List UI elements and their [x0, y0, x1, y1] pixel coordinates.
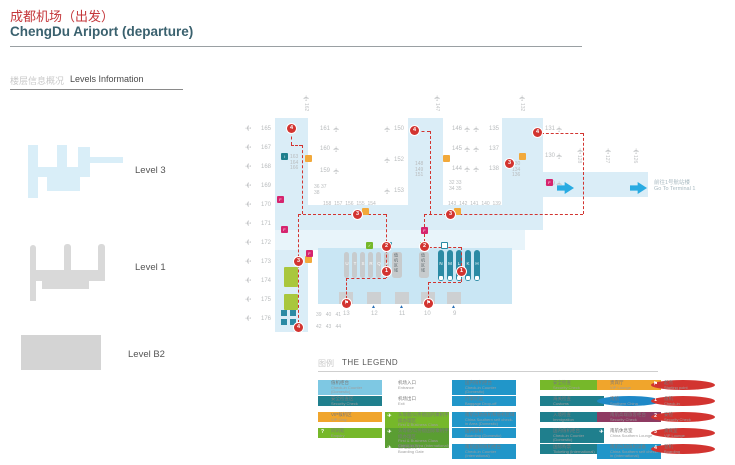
section-label-zh: 楼层信息概况: [10, 74, 64, 87]
route-marker: 4: [294, 323, 303, 332]
legend-icon: [540, 396, 549, 405]
legend-icon: [597, 380, 606, 389]
legend-divider: [318, 371, 658, 372]
legend-icon: [318, 396, 327, 405]
map-shape: [281, 319, 287, 325]
legend-label-en: Security Check: [553, 386, 580, 391]
legend-item: 南航自助值机和值机区域 China Southern self check-in…: [452, 412, 516, 427]
legend-label: 贵宾室 VIP Lounge: [664, 428, 685, 438]
plane-icon: [556, 125, 564, 133]
legend-label-en: Starting point: [664, 386, 688, 391]
poi-icon: F: [546, 179, 553, 186]
map-label: 147: [434, 103, 439, 111]
plane-icon: [244, 239, 252, 247]
legend-label-en: Boarding: [664, 450, 680, 455]
route-segment: [291, 145, 302, 146]
route-marker: 1: [382, 267, 391, 276]
level3-shape-part: [47, 177, 80, 191]
level1-shape-part: [42, 281, 89, 289]
map-label: ▲: [399, 304, 404, 310]
legend-label-en: Boarding (Domestic): [465, 434, 501, 439]
legend-icon: [540, 380, 549, 389]
poi-icon: F: [306, 250, 313, 257]
map-label: 173: [261, 259, 271, 266]
map-label: 36 37 38: [314, 185, 327, 196]
route-segment: [430, 131, 431, 214]
map-label: 42 43 44: [316, 325, 341, 331]
map-label: 160: [320, 146, 330, 153]
route-marker: ⚑: [424, 299, 433, 308]
map-shape: [284, 267, 298, 287]
map-label: 127: [604, 155, 609, 163]
legend-icon: 3: [651, 428, 660, 437]
plane-icon: [333, 145, 341, 153]
map-label: 11: [399, 311, 405, 318]
map-shape: [439, 276, 443, 280]
legend-item: 行李托运 Baggage Drop-off: [452, 396, 516, 406]
legend-label-en: China Southern self check-in Area (Domes…: [465, 418, 516, 427]
poi-icon: [362, 208, 369, 215]
map-label: 137: [489, 146, 499, 153]
map-label: 171: [261, 221, 271, 228]
legend-label-en: Immigration: [553, 418, 574, 423]
route-segment: [541, 133, 583, 134]
plane-icon: [464, 125, 472, 133]
legend-item: 入境检查 Immigration: [540, 412, 604, 422]
legend-item: ✈ 航班登机口 Boarding Gate: [385, 444, 449, 454]
map-label: 176: [261, 316, 271, 323]
route-segment: [428, 282, 461, 283]
level1-shape-part: [30, 281, 36, 301]
map-label: 168: [261, 164, 271, 171]
map-shape: [475, 276, 479, 280]
legend-item: 国际购票 Ticketing (International): [540, 444, 604, 454]
plane-icon: [633, 147, 641, 155]
poi-icon: F: [421, 227, 428, 234]
map-label: H: [474, 261, 480, 266]
legend-icon: ▲: [385, 380, 394, 389]
route-segment: [346, 278, 386, 279]
map-shape: [502, 172, 648, 197]
map-label: 158 157 156 155 154: [323, 202, 376, 208]
legend-label-en: VIP Lounge: [610, 386, 631, 391]
map-label: 169: [261, 183, 271, 190]
map-label: 167: [261, 145, 271, 152]
poi-icon: [441, 242, 448, 249]
route-segment: [461, 247, 462, 282]
legend-item: 安全检查 Security Check: [540, 380, 604, 390]
route-segment: [346, 278, 347, 299]
map-shape: [395, 292, 409, 304]
map-label: 150: [394, 126, 404, 133]
route-marker: 2: [382, 242, 391, 251]
legend-item: 国内值机柜台 Check-in Counter (Domestic): [540, 428, 604, 443]
legend-label: 问讯处 Enquiry: [331, 428, 345, 438]
plane-icon: [333, 125, 341, 133]
legend-label-en: China Southern Lounge: [610, 434, 652, 439]
map-label: 132: [519, 103, 524, 111]
legend-label: 航班登机口 Boarding Gate: [398, 444, 424, 454]
levelb2-thumbnail[interactable]: [21, 335, 101, 370]
section-label-en: Levels Information: [70, 74, 144, 84]
header-divider: [10, 46, 582, 47]
section-divider: [10, 89, 183, 90]
legend-icon: 4: [651, 444, 660, 453]
level3-shape-part: [57, 145, 67, 167]
map-label: 128: [576, 155, 581, 163]
legend-icon: ⚑: [651, 380, 660, 389]
legend-label-en: VIP Only: [331, 418, 352, 423]
plane-icon: [434, 94, 442, 102]
plane-icon: [244, 296, 252, 304]
legend-icon: [540, 444, 549, 453]
level1-shape-part: [30, 245, 36, 273]
level3-label[interactable]: Level 3: [135, 165, 166, 176]
plane-icon: [473, 125, 481, 133]
legend-label-en: Enquiry: [331, 434, 345, 439]
poi-icon: ↕: [281, 153, 288, 160]
legend-label-en: VIP Lounge: [664, 434, 685, 439]
plane-icon: [384, 125, 392, 133]
map-label: 值机区域: [394, 253, 398, 273]
map-label: 9: [453, 311, 456, 318]
legend-label-en: Entrance: [398, 386, 416, 391]
route-marker: 3: [505, 159, 514, 168]
legend-icon: [540, 428, 549, 437]
map-label: 174: [261, 278, 271, 285]
legend-icon: ✈: [385, 444, 394, 453]
page-title-en: ChengDu Ariport (departure): [10, 24, 193, 39]
legend-label: 南航国际值机柜台 Check-in Counter (International…: [465, 444, 516, 459]
map-label: K: [465, 261, 471, 266]
map-label: 172: [261, 240, 271, 247]
map-label: R: [368, 261, 374, 266]
plane-icon: [333, 167, 341, 175]
map-label: N: [438, 261, 444, 266]
legend-label: 海关检查 Customs: [553, 396, 571, 406]
map-shape: [447, 292, 461, 304]
map-label: 170: [261, 202, 271, 209]
poi-icon: [305, 256, 312, 263]
plane-icon: [244, 163, 252, 171]
route-marker: 3: [294, 257, 303, 266]
route-segment: [302, 145, 303, 214]
poi-icon: ✓: [366, 242, 373, 249]
legend-label: 南航自助值机和值机区域 China Southern self check-in…: [465, 412, 516, 427]
terminal-link-zh[interactable]: 前往1号航站楼: [654, 178, 690, 186]
legend-label: 安检 Security Check: [664, 412, 691, 422]
map-label: 138: [489, 166, 499, 173]
legend-label: VIP候机区 VIP Only: [331, 412, 352, 422]
legend-item: 3 贵宾室 VIP Lounge: [651, 428, 715, 438]
legend-label-en: Security Check: [331, 402, 358, 407]
map-label: Q: [376, 261, 382, 266]
legend-icon: ✈: [385, 428, 394, 437]
map-label: 165: [261, 126, 271, 133]
map-label: 163 164 166: [290, 155, 298, 172]
map-label: ▲: [371, 304, 376, 310]
legend-icon: 2: [651, 412, 660, 421]
map-label: ▲: [451, 304, 456, 310]
legend-label: 南航 Southern China: [610, 396, 638, 406]
plane-icon: [464, 145, 472, 153]
poi-icon: F: [277, 196, 284, 203]
plane-icon: [556, 152, 564, 160]
legend-label-en: Southern China: [610, 402, 638, 407]
legend-icon: [452, 396, 461, 405]
map-label: 152: [394, 157, 404, 164]
legend-label: 贵宾厅 VIP Lounge: [610, 380, 631, 390]
legend-label: 登机 Boarding: [664, 444, 680, 454]
levelb2-label[interactable]: Level B2: [128, 349, 165, 360]
map-shape: [466, 276, 470, 280]
level1-shape-part: [98, 244, 105, 273]
legend-item: 国内登机 Boarding (Domestic): [452, 428, 516, 438]
map-label: 值机区域: [421, 253, 425, 273]
legend-icon: [597, 412, 606, 421]
legend-label: 值机柜台 Check-in Counter (Domestic): [331, 380, 382, 395]
poi-icon: [443, 155, 450, 162]
legend-icon: [452, 444, 461, 453]
poi-icon: [454, 208, 461, 215]
legend-label-en: Ticketing (International): [553, 450, 595, 455]
legend-item: 国内值机柜台 Check-in Counter (Domestic): [452, 380, 516, 395]
legend-label: 行李托运 Baggage Drop-off: [465, 396, 497, 406]
map-label: 148 149 151: [415, 162, 423, 179]
plane-icon: [519, 94, 527, 102]
map-label: 146: [452, 126, 462, 133]
map-label: 153: [394, 188, 404, 195]
legend-icon: [318, 380, 327, 389]
legend-title-zh: 图例: [318, 358, 334, 369]
route-segment: [583, 133, 584, 214]
level1-label[interactable]: Level 1: [135, 262, 166, 273]
map-label: 175: [261, 297, 271, 304]
map-shape: [448, 276, 452, 280]
legend-icon: ✈: [385, 412, 394, 421]
map-label: 131: [545, 126, 555, 133]
route-marker: 2: [420, 242, 429, 251]
level3-shape-part: [37, 167, 90, 177]
plane-icon: [244, 277, 252, 285]
legend-label-en: Check-in Counter (Domestic): [331, 386, 382, 395]
legend-label: 机场入口 Entrance: [398, 380, 416, 390]
map-shape: [290, 310, 296, 316]
map-label: M: [447, 261, 453, 266]
map-label: 159: [320, 168, 330, 175]
route-segment: [291, 131, 292, 145]
legend-label-en: Boarding Gate: [398, 450, 424, 455]
plane-icon: [473, 145, 481, 153]
map-label: S: [360, 261, 366, 266]
map-label: 126: [632, 155, 637, 163]
legend-item: 海关检查 Customs: [540, 396, 604, 406]
legend-label-en: Check-in Counter (Domestic): [465, 386, 516, 395]
map-label: U: [344, 261, 350, 266]
plane-icon: [244, 258, 252, 266]
legend-item: ⚑ 起点 Starting point: [651, 380, 715, 390]
legend-item: ▲ 机场入口 Entrance: [385, 380, 449, 390]
page-title-zh: 成都机场（出发）: [10, 6, 114, 25]
plane-icon: [244, 144, 252, 152]
map-label: 32 33 34 35: [449, 181, 462, 192]
legend-label: 国内值机柜台 Check-in Counter (Domestic): [465, 380, 516, 395]
route-marker: 4: [410, 126, 419, 135]
legend-label: 国内登机 Boarding (Domestic): [465, 428, 501, 438]
legend-icon: [318, 412, 327, 421]
level1-shape-part: [30, 270, 105, 281]
legend-label-en: Exit: [398, 402, 416, 407]
legend-label-en: Customs: [553, 402, 571, 407]
legend-label: 安全检查区 Security Check: [331, 396, 358, 406]
legend-icon: ?: [318, 428, 327, 437]
plane-icon: [473, 165, 481, 173]
legend-label: 国际购票 Ticketing (International): [553, 444, 595, 454]
legend-label: 南航休息室 China Southern Lounge: [610, 428, 652, 438]
map-label: 13: [343, 311, 350, 318]
legend-icon: [452, 412, 461, 421]
plane-icon: [244, 315, 252, 323]
map-shape: [367, 292, 381, 304]
plane-icon: [464, 165, 472, 173]
plane-icon: [244, 220, 252, 228]
legend-icon: [597, 396, 606, 405]
poi-icon: [305, 155, 312, 162]
legend-title-en: THE LEGEND: [342, 358, 398, 367]
plane-icon: [303, 94, 311, 102]
poi-icon: F: [281, 226, 288, 233]
map-shape: [284, 294, 298, 310]
legend-item: 南航国际值机柜台 Check-in Counter (International…: [452, 444, 516, 459]
legend-item: 2 安检 Security Check: [651, 412, 715, 422]
plane-icon: [384, 156, 392, 164]
poi-icon: [519, 153, 526, 160]
legend-item: ▲ 机场出口 Exit: [385, 396, 449, 406]
plane-icon: [605, 147, 613, 155]
plane-icon: [244, 201, 252, 209]
legend-item: 1 值机 Check-in: [651, 396, 715, 406]
map-label: 39 40 41: [316, 313, 341, 319]
plane-icon: [244, 182, 252, 190]
legend-item: 安全检查区 Security Check: [318, 396, 382, 406]
map-shape: [275, 230, 525, 250]
map-shape: [275, 205, 525, 230]
legend-label: 安全检查 Security Check: [553, 380, 580, 390]
legend-label-en: Check-in Counter (International): [465, 450, 516, 459]
route-marker: 4: [287, 124, 296, 133]
level1-shape-part: [64, 244, 71, 273]
legend-label: 南航高端旅客柜台 Security Check: [610, 412, 646, 422]
route-marker: 4: [533, 128, 542, 137]
legend-item: ? 问讯处 Enquiry: [318, 428, 382, 438]
legend-label: 机场出口 Exit: [398, 396, 416, 406]
map-shape: [281, 310, 287, 316]
legend-label-en: Security Check: [664, 418, 691, 423]
route-marker: ⚑: [342, 299, 351, 308]
legend-item: 值机柜台 Check-in Counter (Domestic): [318, 380, 382, 395]
legend-label-en: Check-in: [664, 402, 680, 407]
plane-icon: [244, 125, 252, 133]
route-segment: [428, 282, 429, 299]
map-label: P: [384, 261, 390, 266]
map-label: 144: [452, 166, 462, 173]
legend-icon: ✈: [597, 428, 606, 437]
map-label: 145: [452, 146, 462, 153]
legend-icon: [597, 444, 606, 453]
map-label: T: [352, 261, 358, 266]
route-marker: 1: [457, 267, 466, 276]
map-label: 162: [303, 103, 308, 111]
map-label: 130: [545, 153, 555, 160]
map-label: 12: [371, 311, 378, 318]
legend-label-en: Security Check: [610, 418, 646, 423]
level3-shape-part: [90, 157, 123, 163]
legend-icon: [540, 412, 549, 421]
map-label: 161: [320, 126, 330, 133]
terminal-link-en[interactable]: Go To Terminal 1: [654, 186, 695, 192]
route-marker: 3: [353, 210, 362, 219]
legend-item: 4 登机 Boarding: [651, 444, 715, 454]
legend-label: 起点 Starting point: [664, 380, 688, 390]
plane-icon: [384, 187, 392, 195]
legend-icon: ▲: [385, 396, 394, 405]
route-segment: [298, 214, 386, 215]
legend-label: 入境检查 Immigration: [553, 412, 574, 422]
map-label: 10: [424, 311, 431, 318]
legend-icon: [452, 428, 461, 437]
route-segment: [298, 214, 299, 328]
route-marker: 3: [446, 210, 455, 219]
map-label: 135: [489, 126, 499, 133]
legend-label-en: Baggage Drop-off: [465, 402, 497, 407]
legend-icon: [452, 380, 461, 389]
map-label: 143 142 141 140 139: [448, 202, 501, 208]
legend-icon: 1: [651, 396, 660, 405]
legend-item: VIP候机区 VIP Only: [318, 412, 382, 422]
legend-label: 值机 Check-in: [664, 396, 680, 406]
